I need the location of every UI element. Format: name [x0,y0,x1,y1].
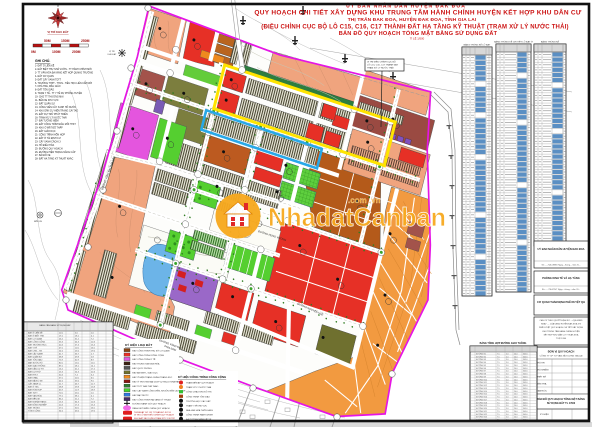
svg-text:20- ĐẤT GIÁO DỤC: 20- ĐẤT GIÁO DỤC [35,130,56,133]
svg-text:ĐẤT AN NINH - GIÁO DỤC: ĐẤT AN NINH - GIÁO DỤC [133,372,159,375]
svg-text:ĐƯỜNG RANH GIỚI QUY HOẠCH: ĐƯỜNG RANH GIỚI QUY HOẠCH [133,403,166,406]
svg-text:5.0: 5.0 [506,362,509,364]
svg-text:5.0: 5.0 [506,414,509,416]
svg-text:345.6: 345.6 [523,414,528,416]
svg-text:345.6: 345.6 [523,362,528,364]
svg-text:ĐẤT NÔNG NGHIỆP: ĐẤT NÔNG NGHIỆP [28,403,47,406]
svg-text:THỬA ĐẤT SỐ 155 TỜ BẢN ĐỒ SỐ 1: THỬA ĐẤT SỐ 155 TỜ BẢN ĐỒ SỐ 18 [134,411,172,414]
svg-text:ĐẤT QUÂN SỰ: ĐẤT QUÂN SỰ [28,355,42,358]
svg-text:23- CÂY XANH CÁCH LY: 23- CÂY XANH CÁCH LY [35,140,62,143]
svg-text:VỊ TRÍ LÔ ĐẤT ĐIỀU CHỈNH QUY H: VỊ TRÍ LÔ ĐẤT ĐIỀU CHỈNH QUY HOẠCH [134,414,174,417]
svg-text:BẢNG TỔNG HỢP ĐƯỜNG GIAO THÔNG: BẢNG TỔNG HỢP ĐƯỜNG GIAO THÔNG [480,342,527,345]
svg-text:7.5: 7.5 [497,397,500,399]
svg-text:TRẠM XỬ LÝ NƯỚC THẢI: TRẠM XỬ LÝ NƯỚC THẢI [186,386,212,389]
svg-text:100M: 100M [52,50,61,54]
svg-text:ĐẤT CÂY XANH CÔNG VIÊN, KHUÔN: ĐẤT CÂY XANH CÔNG VIÊN, KHUÔN VIÊN CÂY X… [133,389,186,392]
svg-text:SỬ DỤNG ĐẤT TL 1/500: SỬ DỤNG ĐẤT TL 1/500 [547,402,576,405]
svg-text:ĐƯỜNG N23: ĐƯỜNG N23 [476,416,487,419]
svg-text:LÔ C15, C16, C17 THÀNH ĐẤT: LÔ C15, C16, C17 THÀNH ĐẤT [367,64,399,67]
svg-text:ĐẤT Ở TĐC: ĐẤT Ở TĐC [28,385,39,388]
svg-text:NHÀ VĂN HÓA THÔN LÀNG: NHÀ VĂN HÓA THÔN LÀNG [186,409,213,412]
svg-text:ĐẤT Ở LIỀN KỀ: ĐẤT Ở LIỀN KỀ [28,331,43,334]
svg-text:ĐẤT TRUNG TÂM VĂN HÓA: ĐẤT TRUNG TÂM VĂN HÓA [133,363,161,366]
svg-text:ĐẤT GIAO THÔNG: ĐẤT GIAO THÔNG [28,364,46,367]
svg-text:24.0: 24.0 [514,405,518,407]
svg-text:(ĐIỀU CHỈNH CỤC BỘ LÔ C15, C16: (ĐIỀU CHỈNH CỤC BỘ LÔ C15, C16, C17 THÀN… [261,23,568,31]
svg-text:27- BÁI ĐỖ XE: 27- BÁI ĐỖ XE [35,154,51,157]
svg-text:MẶT NƯỚC HỒ: MẶT NƯỚC HỒ [28,361,43,364]
svg-text:250M: 250M [81,39,90,43]
svg-text:TRƯỜNG HỌC CÁC CẤP: TRƯỜNG HỌC CÁC CẤP [186,400,211,403]
svg-text:24.0: 24.0 [514,382,518,384]
svg-text:24.0: 24.0 [514,354,518,356]
svg-text:25- ĐƯỜNG QUY HOẠCH: 25- ĐƯỜNG QUY HOẠCH [35,147,63,150]
svg-text:7.5: 7.5 [497,411,500,413]
svg-text:7.5: 7.5 [497,394,500,396]
svg-text:7.5: 7.5 [497,371,500,373]
svg-text:24.0: 24.0 [514,397,518,399]
svg-text:200M: 200M [72,50,81,54]
svg-text:ĐẤT BẾN XE: ĐẤT BẾN XE [28,397,41,400]
svg-text:KẾT HỢP KHU DÂN CƯ TT ĐAK ĐOA: KẾT HỢP KHU DÂN CƯ TT ĐAK ĐOA [544,333,579,336]
svg-text:7.5: 7.5 [497,374,500,376]
svg-text:2- ĐẤT BIỆT THỰ NHÀ VƯỜN - TT: 2- ĐẤT BIỆT THỰ NHÀ VƯỜN - TT HÀNH CHÍNH… [35,68,92,71]
svg-text:24.0: 24.0 [514,368,518,370]
svg-text:BẢNG THỐNG KÊ: BẢNG THỐNG KÊ [541,41,560,44]
svg-text:KÝ HIỆU: KÝ HIỆU [540,413,549,416]
svg-text:5.0: 5.0 [506,368,509,370]
svg-text:28- ĐẤT HẠ TẦNG KỸ THUẬT KHÁC: 28- ĐẤT HẠ TẦNG KỸ THUẬT KHÁC [35,158,74,161]
svg-text:ĐƯỜNG N9: ĐƯỜNG N9 [476,375,486,378]
svg-text:ĐƯỜNG N5: ĐƯỜNG N5 [476,364,486,367]
svg-text:24.0: 24.0 [514,385,518,387]
svg-text:24.0: 24.0 [514,391,518,393]
svg-text:7.5: 7.5 [497,382,500,384]
svg-text:345.6: 345.6 [523,354,528,356]
svg-text:345.6: 345.6 [523,397,528,399]
svg-text:TỔNG CỘNG: TỔNG CỘNG [28,409,41,412]
svg-text:Số:....../TĐ-KTHT Ngày....th: Số:....../TĐ-KTHT Ngày....tháng....năm 2… [542,288,581,291]
svg-text:5.0: 5.0 [506,385,509,387]
svg-text:ĐẤT CÔNG TRÌNH TRỤ SỞ CƠ QUAN: ĐẤT CÔNG TRÌNH TRỤ SỞ CƠ QUAN [133,349,170,352]
svg-text:ĐƯỜNG N20: ĐƯỜNG N20 [476,407,487,410]
svg-text:GHI CHÚ.: GHI CHÚ. [35,58,50,63]
svg-text:5.0: 5.0 [506,408,509,410]
svg-text:18- ĐẤT CÔNG TRÌNH ĐẦU MỐI HTK: 18- ĐẤT CÔNG TRÌNH ĐẦU MỐI HTKT [35,123,76,126]
svg-text:ĐẤT VĂN HÓA: ĐẤT VĂN HÓA [28,394,42,397]
svg-text:7.5: 7.5 [497,405,500,407]
svg-text:7.5: 7.5 [497,354,500,356]
svg-text:5.0: 5.0 [506,354,509,356]
svg-text:5.0: 5.0 [506,399,509,401]
svg-text:VỊ TRÍ ĐIỀU CHỈNH CỤC BỘ: VỊ TRÍ ĐIỀU CHỈNH CỤC BỘ [367,61,396,64]
svg-text:VỊ TRÍ: VỊ TRÍ [109,50,115,53]
svg-text:ĐƯỜNG N11: ĐƯỜNG N11 [476,381,487,384]
svg-text:ĐƯỜNG N7: ĐƯỜNG N7 [476,370,486,373]
svg-text:6- TRƯỜNG THPT - THCS - TIỂU H: 6- TRƯỜNG THPT - THCS - TIỂU HỌC LIÊN CẤ… [35,82,92,85]
svg-text:ĐƯỜNG N1: ĐƯỜNG N1 [476,353,486,356]
svg-text:ĐƯỜNG N17: ĐƯỜNG N17 [476,398,487,401]
svg-text:CÂY XANH CL: CÂY XANH CL [28,382,42,385]
svg-text:ĐẤT TÔN GIÁO: ĐẤT TÔN GIÁO [28,358,43,361]
svg-text:ĐƯỜNG N21: ĐƯỜNG N21 [476,410,487,413]
svg-text:345.6: 345.6 [523,368,528,370]
svg-text:ĐẤT CÔNG TRÌNH CÔNG CỘNG: ĐẤT CÔNG TRÌNH CÔNG CỘNG [133,354,165,357]
svg-text:7.5: 7.5 [497,362,500,364]
svg-text:345.6: 345.6 [523,408,528,410]
svg-text:5.0: 5.0 [506,417,509,419]
svg-text:5.0: 5.0 [506,356,509,358]
svg-text:7.5: 7.5 [497,365,500,367]
svg-text:5.0: 5.0 [506,371,509,373]
svg-text:21- CÔNG TRÌNH HỖN HỢP: 21- CÔNG TRÌNH HỖN HỢP [35,134,65,137]
svg-text:CÔNG TRÌNH HÀNH CHÍNH: CÔNG TRÌNH HÀNH CHÍNH [186,413,213,416]
svg-text:345.6: 345.6 [523,379,528,381]
svg-text:KÝ HIỆU LOẠI ĐẤT: KÝ HIỆU LOẠI ĐẤT [125,342,152,347]
svg-text:KHU ĐẤT: KHU ĐẤT [108,53,118,56]
svg-text:345.6: 345.6 [523,402,528,404]
svg-text:ĐẤT HTKT: ĐẤT HTKT [28,373,39,376]
svg-text:ĐẤT Ở BIỆT THỰ: ĐẤT Ở BIỆT THỰ [28,334,44,337]
svg-text:24.0: 24.0 [514,362,518,364]
svg-text:ĐẤT DỰ TRỮ: ĐẤT DỰ TRỮ [28,370,41,373]
svg-text:24- HỒ ĐIỀU HÒA: 24- HỒ ĐIỀU HÒA [35,144,55,147]
svg-text:345.6: 345.6 [523,382,528,384]
svg-text:345.6: 345.6 [523,411,528,413]
svg-text:ĐẤT Y TẾ: ĐẤT Y TẾ [28,346,38,349]
svg-text:24.0: 24.0 [514,402,518,404]
svg-text:13- CÔNG VIÊN CÂY XANH HỒ NƯỚC: 13- CÔNG VIÊN CÂY XANH HỒ NƯỚC [35,106,76,109]
svg-text:24.0: 24.0 [514,411,518,413]
svg-text:RANH GIỚI ĐIỀU CHỈNH QUY HOẠCH: RANH GIỚI ĐIỀU CHỈNH QUY HOẠCH [133,407,170,410]
svg-text:345.6: 345.6 [523,371,528,373]
svg-text:KHU TRUNG TÂM HÀNH CHÍNH HUYỆN: KHU TRUNG TÂM HÀNH CHÍNH HUYỆN [542,330,580,333]
svg-text:12- ĐẤT QUÂN SỰ: 12- ĐẤT QUÂN SỰ [35,102,55,105]
svg-text:THIẾT KẾ: THIẾT KẾ [536,376,546,379]
svg-text:5.0: 5.0 [506,394,509,396]
svg-text:15- ĐẤT DỰ TRỮ PHÁT TRIỂN: 15- ĐẤT DỰ TRỮ PHÁT TRIỂN [35,113,68,116]
svg-text:345.6: 345.6 [523,356,528,358]
svg-text:ĐƠN VỊ QUY HOẠCH: ĐƠN VỊ QUY HOẠCH [548,350,575,354]
svg-text:7.5: 7.5 [497,391,500,393]
svg-text:ĐẤT NGHĨA TRANG: ĐẤT NGHĨA TRANG [28,400,47,403]
svg-text:345.6: 345.6 [523,388,528,390]
svg-text:ĐẤT HỖN HỢP: ĐẤT HỖN HỢP [28,388,43,391]
svg-text:345.6: 345.6 [523,365,528,367]
svg-text:150M: 150M [61,39,70,43]
svg-text:5.0: 5.0 [506,376,509,378]
svg-text:ĐƯỜNG N19: ĐƯỜNG N19 [476,404,487,407]
svg-text:11- BẾN XE KHU VỰC: 11- BẾN XE KHU VỰC [35,99,59,102]
svg-text:BẾN XE: BẾN XE [34,220,43,223]
svg-text:ĐẤT CÂY XANH: ĐẤT CÂY XANH [28,352,43,355]
svg-text:24.0: 24.0 [514,379,518,381]
svg-text:CÔNG TY CP TƯ VẤN XÂY DỰNG GIA: CÔNG TY CP TƯ VẤN XÂY DỰNG GIA LAI [540,355,583,358]
svg-text:50M: 50M [44,39,51,43]
svg-text:7- NHÀ TRẺ, MẪU GIÁO: 7- NHÀ TRẺ, MẪU GIÁO [35,85,61,88]
svg-text:TỈ LỆ 1/500: TỈ LỆ 1/500 [556,337,567,340]
svg-text:KÝ HIỆU CÔNG TRÌNH CÔNG CỘNG: KÝ HIỆU CÔNG TRÌNH CÔNG CỘNG [178,374,226,379]
svg-text:ĐẤT QUỐC PHÒNG: ĐẤT QUỐC PHÒNG [133,367,153,370]
svg-text:345.6: 345.6 [523,391,528,393]
svg-text:24.0: 24.0 [514,417,518,419]
svg-text:BẢNG CÂN BẰNG SỬ DỤNG ĐẤT: BẢNG CÂN BẰNG SỬ DỤNG ĐẤT [39,324,71,327]
svg-text:24.0: 24.0 [514,371,518,373]
svg-text:16- TRẠM XỬ LÝ NƯỚC THẢI: 16- TRẠM XỬ LÝ NƯỚC THẢI [35,116,67,119]
svg-text:345.6: 345.6 [523,417,528,419]
svg-text:24.0: 24.0 [514,408,518,410]
svg-text:14- KHU DÂN CƯ HIỆN TRẠNG CẢI: 14- KHU DÂN CƯ HIỆN TRẠNG CẢI TẠO [35,109,78,112]
svg-text:5.0: 5.0 [506,391,509,393]
svg-text:ĐẤT CHỢ - TM: ĐẤT CHỢ - TM [28,349,42,352]
svg-text:VỊ TRÍ KHU ĐẤT: VỊ TRÍ KHU ĐẤT [47,29,69,34]
svg-text:24.0: 24.0 [514,394,518,396]
svg-text:22- ĐẤT Ở TÁI ĐỊNH CƯ: 22- ĐẤT Ở TÁI ĐỊNH CƯ [35,137,61,140]
svg-text:7.5: 7.5 [497,399,500,401]
svg-text:ĐẤT CÔNG CỘNG: ĐẤT CÔNG CỘNG [28,340,46,343]
svg-text:24.0: 24.0 [514,399,518,401]
svg-text:7.5: 7.5 [497,368,500,370]
svg-text:17- ĐÀI TƯỞNG NIỆM: 17- ĐÀI TƯỞNG NIỆM [35,120,59,123]
svg-text:ĐẤT KHÁC: ĐẤT KHÁC [28,376,39,379]
svg-text:3- TT VĂN HÓA ĐA NĂNG KẾT HỢP: 3- TT VĂN HÓA ĐA NĂNG KẾT HỢP QUẢNG TRƯỜ… [35,71,93,74]
svg-text:24.0: 24.0 [514,388,518,390]
svg-text:7.5: 7.5 [497,359,500,361]
svg-text:ĐƯỜNG N13: ĐƯỜNG N13 [476,387,487,390]
svg-text:5.0: 5.0 [506,402,509,404]
svg-text:ĐẤT Ở THƯƠNG MẠI DỊCH VỤ TM-DV: ĐẤT Ở THƯƠNG MẠI DỊCH VỤ TM-DV, NHÀ HÀNG [133,380,182,383]
svg-text:KIỂM TRA: KIỂM TRA [536,383,547,386]
svg-text:CÔNG TRÌNH TÔN GIÁO: CÔNG TRÌNH TÔN GIÁO [186,395,210,398]
svg-text:ĐẤT TDTT: ĐẤT TDTT [28,391,38,394]
svg-text:24.0: 24.0 [514,376,518,378]
svg-text:ĐƯỜNG N10: ĐƯỜNG N10 [476,378,487,381]
svg-text:ĐƯỜNG N12: ĐƯỜNG N12 [476,384,487,387]
svg-text:ĐẤT TRƯỜNG HỌC: ĐẤT TRƯỜNG HỌC [28,343,47,346]
svg-text:345.6: 345.6 [523,394,528,396]
svg-text:ĐƯỜNG N16: ĐƯỜNG N16 [476,396,487,399]
svg-text:ĐƯỜNG N15: ĐƯỜNG N15 [476,393,487,396]
svg-text:ĐƯỜNG N14: ĐƯỜNG N14 [476,390,487,393]
svg-text:24.0: 24.0 [514,365,518,367]
svg-text:BẢN ĐỒ QUY HOẠCH TỔNG MẶT BẰNG: BẢN ĐỒ QUY HOẠCH TỔNG MẶT BẰNG [537,398,585,401]
svg-text:ĐƯỜNG N18: ĐƯỜNG N18 [476,401,487,404]
svg-text:5.0: 5.0 [506,388,509,390]
svg-text:GIÁM ĐỐC: GIÁM ĐỐC [536,390,547,393]
svg-text:ĐẤT CÔNG TRÌNH Y TẾ: ĐẤT CÔNG TRÌNH Y TẾ [133,358,157,361]
svg-text:9- TRẠM Y TẾ - TT Y TẾ DỰ PHÒN: 9- TRẠM Y TẾ - TT Y TẾ DỰ PHÒNG HUYỆN [35,92,82,95]
svg-text:ĐƯỜNG N6: ĐƯỜNG N6 [476,367,486,370]
svg-text:ĐƯỜNG N3: ĐƯỜNG N3 [476,358,486,361]
svg-text:24.0: 24.0 [514,359,518,361]
svg-text:ĐẤT TRỐNG: ĐẤT TRỐNG [28,406,40,409]
svg-text:ĐƯỜNG N8: ĐƯỜNG N8 [476,373,486,376]
svg-text:5- ĐẤT CÂY XANH TDTT: 5- ĐẤT CÂY XANH TDTT [35,78,62,81]
svg-text:5.0: 5.0 [506,405,509,407]
svg-text:345.6: 345.6 [523,385,528,387]
svg-text:7.5: 7.5 [497,379,500,381]
svg-text:ĐẤT DÂN CƯ HT: ĐẤT DÂN CƯ HT [28,367,44,370]
svg-text:TRẠM BIẾN ÁP QUY HOẠCH: TRẠM BIẾN ÁP QUY HOẠCH [186,382,214,385]
svg-text:PHÊ DUYỆT QUY HOẠCH CHI TIẾT X: PHÊ DUYỆT QUY HOẠCH CHI TIẾT XÂY DỰNG [539,326,584,329]
svg-text:.com .vn: .com .vn [348,196,381,205]
svg-text:5.0: 5.0 [506,411,509,413]
svg-text:345.6: 345.6 [523,359,528,361]
svg-text:10- CHỢ TT THƯƠNG MẠI: 10- CHỢ TT THƯƠNG MẠI [35,96,64,99]
svg-text:345.6: 345.6 [523,376,528,378]
svg-text:NhadatCanban: NhadatCanban [268,202,446,232]
svg-text:CỔNG CHÀO KHU ĐÔ THỊ: CỔNG CHÀO KHU ĐÔ THỊ [186,391,212,394]
svg-text:ĐẤT Ở HIỆN TRẠNG CHỈNH TRANG K: ĐẤT Ở HIỆN TRẠNG CHỈNH TRANG KDC [133,376,173,379]
svg-text:8- ĐẤT TÔN GIÁO: 8- ĐẤT TÔN GIÁO [35,89,54,92]
svg-text:5.0: 5.0 [506,382,509,384]
svg-text:5.0: 5.0 [506,359,509,361]
svg-text:24.0: 24.0 [514,356,518,358]
svg-text:CHỦ NHIỆM: CHỦ NHIỆM [536,369,549,372]
svg-text:24.0: 24.0 [514,374,518,376]
svg-text:7.5: 7.5 [497,414,500,416]
svg-text:TRẠM XỬ LÝ NƯỚC THẢI: TRẠM XỬ LÝ NƯỚC THẢI [367,67,394,70]
svg-text:19- KHU Ở MẬT ĐỘ THẤP: 19- KHU Ở MẬT ĐỘ THẤP [35,127,63,130]
svg-text:ĐƯỜNG N22: ĐƯỜNG N22 [476,413,487,416]
svg-text:7.5: 7.5 [497,417,500,419]
svg-text:24.0: 24.0 [514,414,518,416]
svg-text:1- ĐẤT Ở LIỀN KỀ: 1- ĐẤT Ở LIỀN KỀ [35,65,55,68]
svg-text:5.0: 5.0 [506,365,509,367]
svg-text:7.5: 7.5 [497,402,500,404]
svg-text:ĐẤT TDTT SÂN THỂ THAO: ĐẤT TDTT SÂN THỂ THAO [133,385,159,388]
svg-text:BẢNG THỐNG KÊ LÔ ĐẤT: BẢNG THỐNG KÊ LÔ ĐẤT [464,44,491,47]
svg-text:ĐẤT BÃI ĐỖ XE: ĐẤT BÃI ĐỖ XE [28,379,43,382]
svg-text:345.6: 345.6 [523,399,528,401]
svg-text:7.5: 7.5 [497,356,500,358]
svg-text:ĐẤT CƠ QUAN: ĐẤT CƠ QUAN [28,337,43,340]
svg-text:TRẠM Y TẾ KHU VỰC: TRẠM Y TẾ KHU VỰC [186,404,208,407]
svg-text:26- ĐƯỜNG HIỆN TRẠNG NÂNG CẤP: 26- ĐƯỜNG HIỆN TRẠNG NÂNG CẤP [35,151,76,154]
svg-text:TỈ LỆ 1/500: TỈ LỆ 1/500 [410,36,425,41]
svg-text:CĂN CỨ THEO QUYẾT ĐỊNH SỐ ....: CĂN CỨ THEO QUYẾT ĐỊNH SỐ ..../QĐ-UBND [540,319,584,322]
svg-text:7.5: 7.5 [497,385,500,387]
svg-text:ĐƯỜNG N2: ĐƯỜNG N2 [476,355,486,358]
svg-text:ĐẤT MẶT NƯỚC: ĐẤT MẶT NƯỚC [133,394,150,397]
svg-text:BẢNG THỐNG KÊ CHI TIẾT LÔ ĐẤT: BẢNG THỐNG KÊ CHI TIẾT LÔ ĐẤT Ở [494,41,533,44]
svg-text:ĐẤT CÔNG TRÌNH HẠ TẦNG KỸ THUẬ: ĐẤT CÔNG TRÌNH HẠ TẦNG KỸ THUẬT [133,398,172,401]
svg-text:4- ĐẤT CƠ QUAN: 4- ĐẤT CƠ QUAN [35,75,54,78]
svg-text:345.6: 345.6 [523,405,528,407]
svg-text:345.6: 345.6 [523,374,528,376]
svg-text:ĐƯỜNG N4: ĐƯỜNG N4 [476,361,486,364]
svg-text:5.0: 5.0 [506,374,509,376]
svg-text:0M: 0M [31,50,36,54]
svg-text:NGÀY .... CỦA UBND HUYỆN ĐAK Đ: NGÀY .... CỦA UBND HUYỆN ĐAK ĐOA V/V [541,323,582,326]
svg-text:7.5: 7.5 [497,388,500,390]
svg-text:5.0: 5.0 [506,379,509,381]
svg-text:7.5: 7.5 [497,376,500,378]
svg-text:Số:....../QĐ-UBND Ngày....th: Số:....../QĐ-UBND Ngày....tháng....năm 2… [541,264,581,267]
svg-text:7.5: 7.5 [497,408,500,410]
svg-text:5.0: 5.0 [506,397,509,399]
